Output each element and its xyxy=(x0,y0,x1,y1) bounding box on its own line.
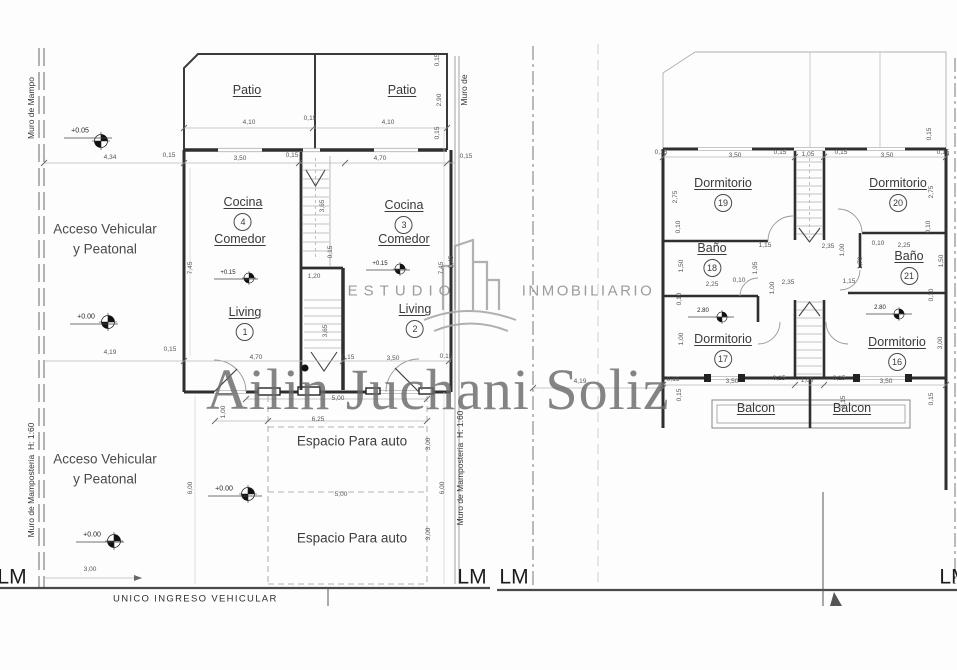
site-lines xyxy=(0,44,957,606)
plan-linework xyxy=(0,0,957,670)
upper-floor-linework xyxy=(530,52,949,490)
level-markers xyxy=(64,132,912,550)
watermark-text: Ailin Juchani Soliz xyxy=(206,356,670,423)
brand-logo-icon xyxy=(424,240,516,331)
floorplan-canvas: PatioPatioCocina4ComedorLiving1Cocina3Co… xyxy=(0,0,957,670)
